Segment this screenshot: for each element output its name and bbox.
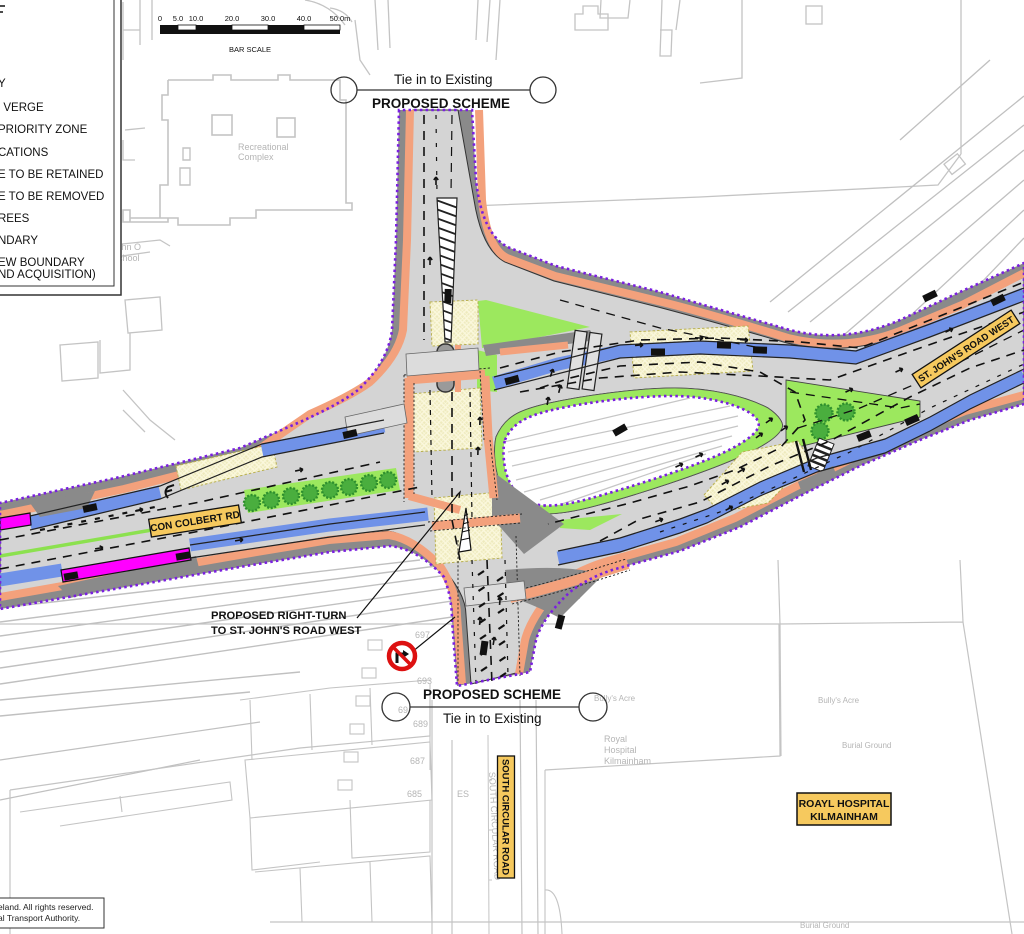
svg-text:al Transport Authority.: al Transport Authority. (0, 913, 80, 923)
svg-text:PROPOSED SCHEME: PROPOSED SCHEME (423, 687, 561, 702)
svg-text:0: 0 (158, 14, 162, 23)
svg-text:Tie in to Existing: Tie in to Existing (443, 711, 542, 726)
svg-text:Bully's Acre: Bully's Acre (818, 696, 860, 705)
svg-text:ES: ES (457, 789, 469, 799)
svg-text:ND ACQUISITION): ND ACQUISITION) (0, 269, 96, 281)
svg-text:SOUTH CIRCULAR ROAD: SOUTH CIRCULAR ROAD (500, 759, 511, 875)
svg-text:Hospital: Hospital (604, 745, 637, 755)
svg-text:Royal: Royal (604, 734, 627, 744)
svg-text:' VERGE: ' VERGE (0, 102, 44, 114)
svg-text:Burial Ground: Burial Ground (800, 921, 849, 930)
svg-text:Y: Y (0, 78, 6, 90)
svg-text:PRIORITY ZONE: PRIORITY ZONE (0, 124, 88, 136)
svg-text:CATIONS: CATIONS (0, 147, 49, 159)
svg-text:687: 687 (410, 756, 425, 766)
svg-text:TO ST. JOHN'S ROAD WEST: TO ST. JOHN'S ROAD WEST (211, 625, 362, 637)
svg-text:20.0: 20.0 (225, 14, 240, 23)
svg-text:40.0: 40.0 (297, 14, 312, 23)
svg-text:Tie in to Existing: Tie in to Existing (394, 72, 493, 87)
svg-text:E TO BE REMOVED: E TO BE REMOVED (0, 191, 104, 203)
svg-text:685: 685 (407, 789, 422, 799)
svg-text:Recreational: Recreational (238, 142, 289, 152)
svg-text:Burial Ground: Burial Ground (842, 741, 891, 750)
svg-text:REES: REES (0, 213, 30, 225)
svg-text:PROPOSED SCHEME: PROPOSED SCHEME (372, 96, 510, 111)
svg-text:689: 689 (413, 719, 428, 729)
svg-text:69: 69 (398, 705, 408, 715)
svg-text:Complex: Complex (238, 152, 274, 162)
svg-text:10.0: 10.0 (189, 14, 204, 23)
svg-text:EW BOUNDARY: EW BOUNDARY (0, 257, 85, 269)
svg-text:50.0m: 50.0m (330, 14, 351, 23)
svg-text:NDARY: NDARY (0, 235, 38, 247)
svg-text:693: 693 (417, 676, 432, 686)
svg-text:30.0: 30.0 (261, 14, 276, 23)
svg-text:BAR SCALE: BAR SCALE (229, 45, 271, 54)
svg-text:KILMAINHAM: KILMAINHAM (810, 811, 878, 823)
svg-text:Kilmainham: Kilmainham (604, 756, 651, 766)
svg-text:5.0: 5.0 (173, 14, 183, 23)
svg-text:PROPOSED RIGHT-TURN: PROPOSED RIGHT-TURN (211, 610, 347, 622)
svg-text:E TO BE RETAINED: E TO BE RETAINED (0, 169, 103, 181)
svg-text:ROAYL HOSPITAL: ROAYL HOSPITAL (799, 798, 890, 810)
svg-text:eland. All rights reserved.: eland. All rights reserved. (0, 902, 93, 912)
